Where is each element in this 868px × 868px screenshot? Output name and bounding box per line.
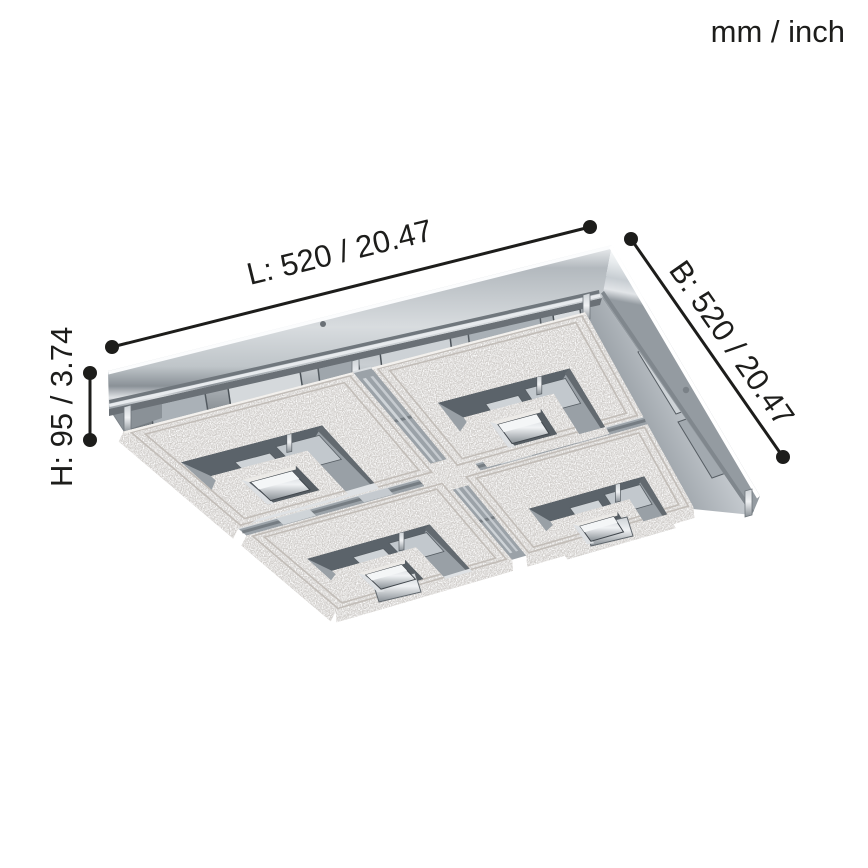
svg-text:mm / inch: mm / inch: [711, 14, 845, 49]
svg-text:H: 95 / 3.74: H: 95 / 3.74: [44, 327, 79, 487]
